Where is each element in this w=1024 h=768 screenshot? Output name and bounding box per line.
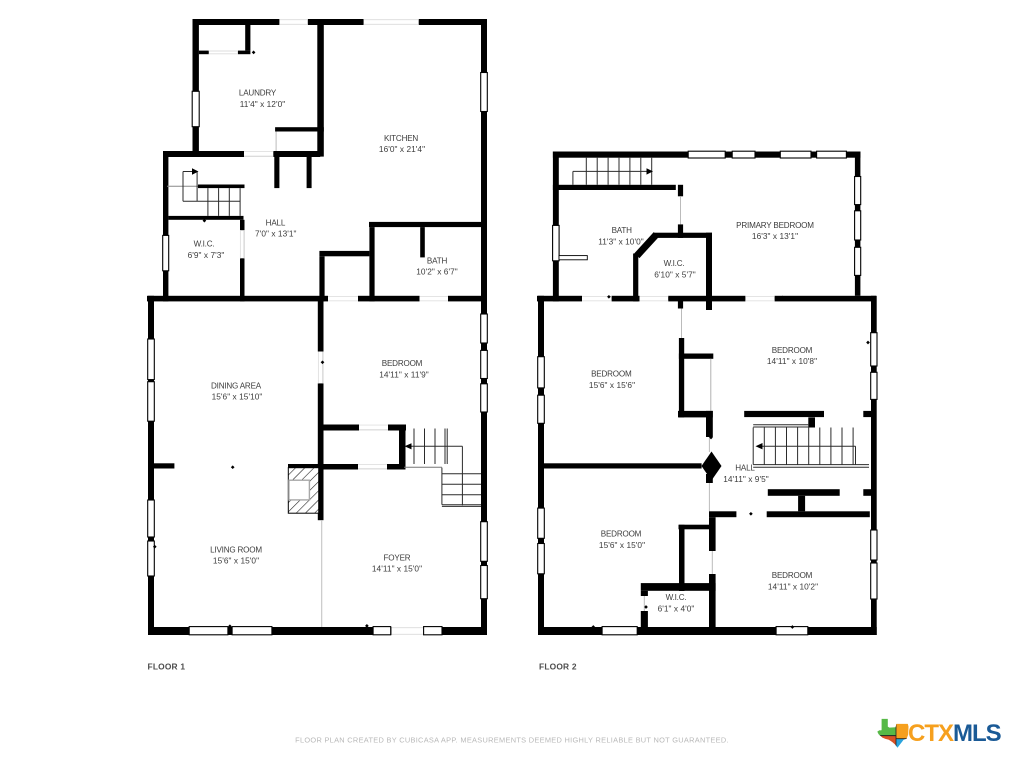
svg-text:6'9" x 7'3": 6'9" x 7'3" — [188, 250, 225, 260]
svg-text:LIVING ROOM: LIVING ROOM — [210, 545, 262, 554]
svg-text:16'0" x 21'4": 16'0" x 21'4" — [379, 144, 425, 154]
svg-text:FLOOR 1: FLOOR 1 — [148, 661, 186, 671]
svg-text:15'6" x 15'0": 15'6" x 15'0" — [213, 556, 259, 566]
svg-text:BEDROOM: BEDROOM — [591, 370, 632, 379]
svg-text:14'11" x 15'0": 14'11" x 15'0" — [372, 564, 422, 574]
svg-text:14'11" x 11'9": 14'11" x 11'9" — [379, 370, 429, 380]
svg-text:HALL: HALL — [735, 464, 755, 473]
svg-text:6'10" x 5'7": 6'10" x 5'7" — [654, 270, 696, 280]
svg-text:14'11" x 10'2": 14'11" x 10'2" — [768, 582, 818, 592]
svg-text:CTXMLS: CTXMLS — [908, 720, 1002, 747]
svg-text:16'3" x 13'1": 16'3" x 13'1" — [752, 231, 798, 241]
svg-text:15'6" x 15'10": 15'6" x 15'10" — [212, 392, 263, 402]
svg-text:BEDROOM: BEDROOM — [601, 530, 642, 539]
svg-text:7'0" x 13'1": 7'0" x 13'1" — [255, 229, 297, 239]
svg-text:6'1" x 4'0": 6'1" x 4'0" — [658, 604, 695, 614]
svg-text:15'6" x 15'0": 15'6" x 15'0" — [599, 540, 645, 550]
svg-text:PRIMARY BEDROOM: PRIMARY BEDROOM — [736, 221, 814, 230]
svg-text:LAUNDRY: LAUNDRY — [239, 89, 277, 98]
svg-text:W.I.C.: W.I.C. — [664, 259, 685, 268]
svg-text:DINING AREA: DINING AREA — [211, 381, 262, 390]
svg-text:BATH: BATH — [427, 256, 448, 265]
svg-text:FLOOR PLAN CREATED BY CUBICASA: FLOOR PLAN CREATED BY CUBICASA APP. MEAS… — [295, 736, 729, 745]
svg-text:14'11" x 9'5": 14'11" x 9'5" — [723, 474, 769, 484]
svg-text:FOYER: FOYER — [384, 553, 411, 562]
svg-text:15'6" x 15'6": 15'6" x 15'6" — [589, 380, 635, 390]
svg-text:14'11" x 10'8": 14'11" x 10'8" — [767, 356, 817, 366]
svg-text:11'4" x 12'0": 11'4" x 12'0" — [240, 99, 286, 109]
svg-text:HALL: HALL — [266, 218, 286, 227]
svg-text:BEDROOM: BEDROOM — [772, 571, 813, 580]
svg-text:W.I.C.: W.I.C. — [666, 593, 687, 602]
svg-text:10'2" x 6'7": 10'2" x 6'7" — [416, 267, 458, 277]
svg-text:FLOOR 2: FLOOR 2 — [539, 661, 577, 671]
svg-text:BATH: BATH — [612, 226, 633, 235]
svg-text:KITCHEN: KITCHEN — [384, 134, 418, 143]
svg-text:W.I.C.: W.I.C. — [194, 240, 215, 249]
svg-text:11'3" x 10'0": 11'3" x 10'0" — [598, 236, 644, 246]
svg-text:BEDROOM: BEDROOM — [382, 359, 423, 368]
svg-text:BEDROOM: BEDROOM — [772, 346, 813, 355]
